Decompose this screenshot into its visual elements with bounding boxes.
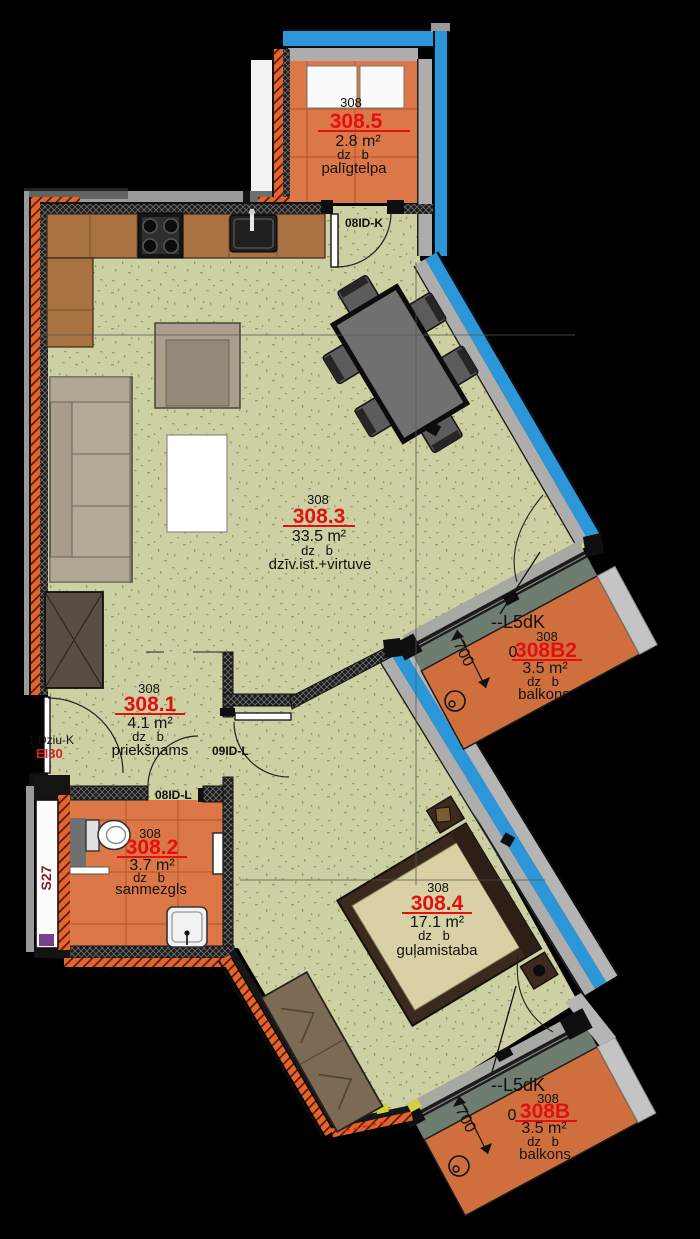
svg-text:308.1: 308.1: [124, 693, 177, 716]
svg-text:EI30: EI30: [36, 746, 63, 761]
svg-text:08ID-L: 08ID-L: [155, 788, 192, 802]
svg-text:308B2: 308B2: [515, 639, 577, 662]
svg-text:sanmezgls: sanmezgls: [115, 881, 187, 898]
svg-text:priekšnams: priekšnams: [112, 742, 189, 759]
svg-text:308: 308: [340, 95, 362, 110]
svg-text:308.3: 308.3: [293, 505, 346, 528]
svg-text:308.2: 308.2: [126, 836, 179, 859]
svg-text:08ID-K: 08ID-K: [345, 216, 383, 230]
svg-text:308.4: 308.4: [411, 892, 464, 915]
svg-text:dzīv.ist.+virtuve: dzīv.ist.+virtuve: [269, 556, 372, 573]
svg-text:1 Dziu-K: 1 Dziu-K: [28, 733, 74, 747]
svg-text:S27: S27: [38, 865, 54, 890]
svg-text:balkons: balkons: [519, 1146, 571, 1163]
svg-text:308.5: 308.5: [330, 110, 383, 133]
svg-text:balkons: balkons: [518, 686, 570, 703]
svg-text:09ID-L: 09ID-L: [212, 744, 249, 758]
svg-text:dz b: dz b: [418, 928, 450, 943]
svg-text:palīgtelpa: palīgtelpa: [321, 160, 387, 177]
svg-text:guļamistaba: guļamistaba: [397, 942, 479, 959]
